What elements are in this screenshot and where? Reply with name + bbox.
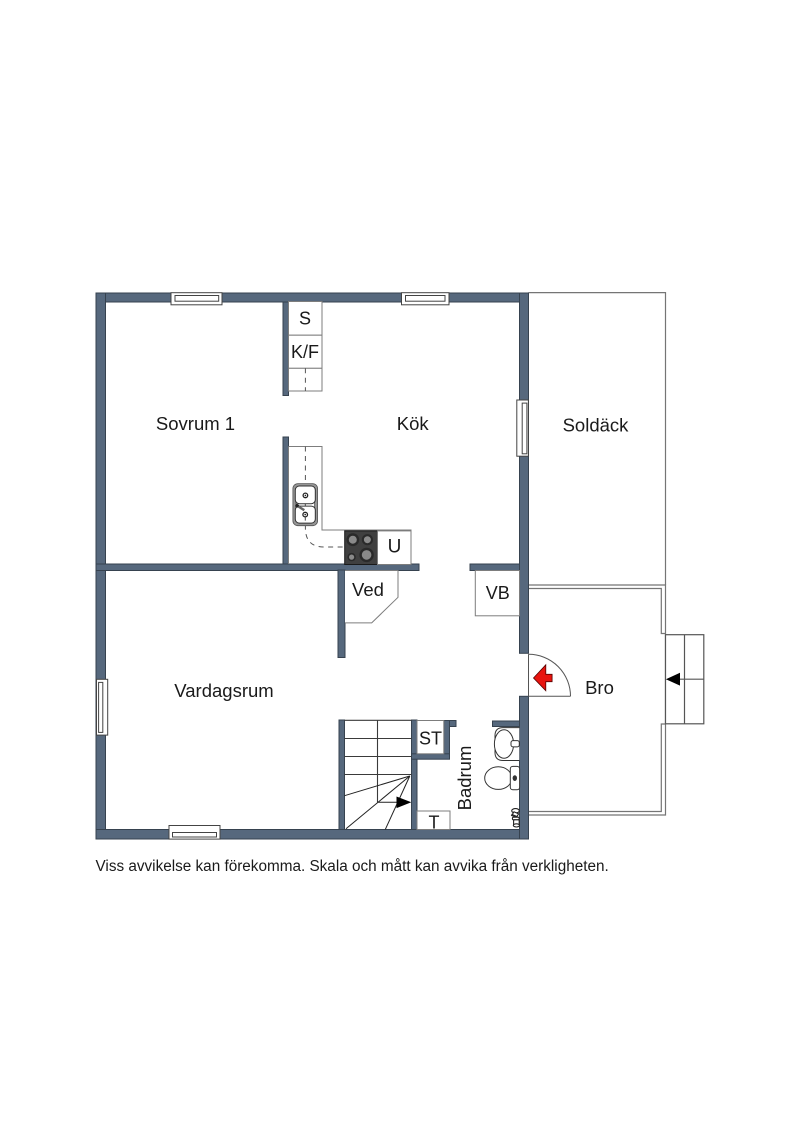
svg-text:Bro: Bro — [585, 677, 614, 698]
svg-text:K/F: K/F — [291, 342, 319, 362]
svg-text:Kök: Kök — [397, 413, 430, 434]
svg-text:ST: ST — [419, 729, 442, 749]
svg-text:Soldäck: Soldäck — [563, 415, 630, 436]
svg-text:U: U — [388, 537, 402, 558]
svg-text:Badrum: Badrum — [454, 746, 475, 811]
svg-text:Ved: Ved — [352, 579, 384, 600]
svg-text:Vardagsrum: Vardagsrum — [174, 680, 273, 701]
svg-text:Viss avvikelse kan förekomma.: Viss avvikelse kan förekomma. Skala och … — [96, 858, 609, 875]
svg-text:VB: VB — [486, 583, 510, 603]
svg-text:T: T — [429, 813, 440, 833]
svg-text:Sovrum 1: Sovrum 1 — [156, 413, 235, 434]
svg-text:S: S — [299, 309, 311, 329]
